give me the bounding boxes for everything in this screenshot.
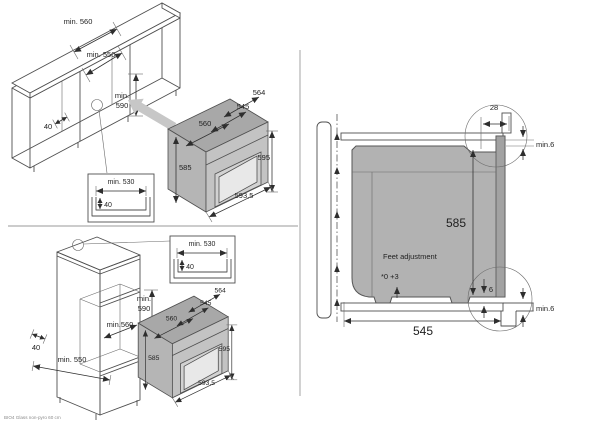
dim-label-595: 595: [219, 346, 231, 353]
column-left-face: [57, 252, 100, 415]
dim-label-min550: min. 550: [87, 50, 116, 59]
inset-label-min530: min. 530: [108, 179, 135, 186]
dim-label-5935: 593,5: [198, 380, 215, 387]
insert-arrow: [128, 99, 176, 131]
dim-label-595: 595: [257, 153, 270, 162]
dim-label-545: 545: [413, 324, 433, 338]
niche-bottom: [100, 357, 140, 372]
side-wall: [317, 122, 331, 318]
oven-isometric-column: 585 595 593,5 560 545 564: [138, 288, 237, 407]
countertop-top: [12, 3, 180, 93]
rear-panel-stub: [502, 113, 511, 133]
panel-column: min. 590 min.560 40 min. 550 min. 530: [30, 236, 237, 420]
column-top-face: [57, 237, 140, 270]
dim-label-min590-2: 590: [116, 101, 129, 110]
column-top-edge2: [57, 256, 140, 274]
dim-label-28: 28: [490, 103, 498, 112]
dim-label-min550: min. 550: [58, 355, 87, 364]
panel-built-under: min. 560 min. 550 min. 590 40 min. 530: [12, 3, 278, 222]
inset-label-40: 40: [104, 202, 112, 209]
dim-label-545: 545: [200, 300, 212, 307]
bottom-shelf: [341, 303, 503, 311]
dim-label-plinth40: 40: [44, 122, 52, 131]
dim-label-top-min6: min.6: [536, 140, 554, 149]
oven-isometric-built-under: 585 595 593,5 560 545 564: [168, 88, 278, 222]
dim-line-min550: [33, 366, 110, 380]
dim-label-min590-2: 590: [138, 304, 151, 313]
dim-label-585: 585: [179, 163, 192, 172]
callout-leader: [99, 110, 107, 173]
base-cabinet-run: [12, 3, 180, 172]
oven-section-body: [352, 136, 505, 303]
dim-label-plinth40: 40: [32, 343, 40, 352]
top-shelf: [341, 133, 503, 140]
inset-label-40: 40: [186, 264, 194, 271]
dim-line-plinth40: [32, 334, 45, 339]
feet-adjustment-range: *0 +3: [381, 272, 399, 281]
dim-label-564: 564: [253, 88, 266, 97]
dim-label-min560: min. 560: [64, 17, 93, 26]
callout-circle: [92, 100, 103, 111]
inset-label-min530: min. 530: [189, 241, 216, 248]
footer-note: BIO4 Glass non-pyro 60 cm: [4, 415, 61, 420]
recess-detail-inset: min. 530 40: [88, 174, 154, 222]
installation-diagram-page: min. 560 min. 550 min. 590 40 min. 530: [0, 0, 600, 424]
dim-line-plinth40: [55, 117, 67, 124]
panel-section: 28 min.6 585 Feet adjustment *0 +3 6 min…: [317, 103, 554, 338]
dim-label-min590-1: min.: [137, 294, 151, 303]
dim-label-560: 560: [166, 315, 178, 322]
callout-leader: [84, 241, 170, 244]
oven-rear-flange: [496, 136, 505, 297]
dim-label-585: 585: [446, 216, 466, 230]
dim-label-min590-1: min.: [115, 91, 129, 100]
callout-circle: [73, 240, 84, 251]
feet-adjustment-title: Feet adjustment: [383, 252, 438, 261]
dim-label-560: 560: [199, 119, 212, 128]
dim-label-564: 564: [214, 288, 226, 295]
dim-label-6: 6: [489, 285, 493, 294]
recess-detail-inset-column: min. 530 40: [170, 236, 235, 283]
diagram-canvas: min. 560 min. 550 min. 590 40 min. 530: [0, 0, 600, 424]
dim-label-5935: 593,5: [235, 191, 254, 200]
dim-label-bottom-min6: min.6: [536, 304, 554, 313]
dim-label-585: 585: [148, 355, 160, 362]
